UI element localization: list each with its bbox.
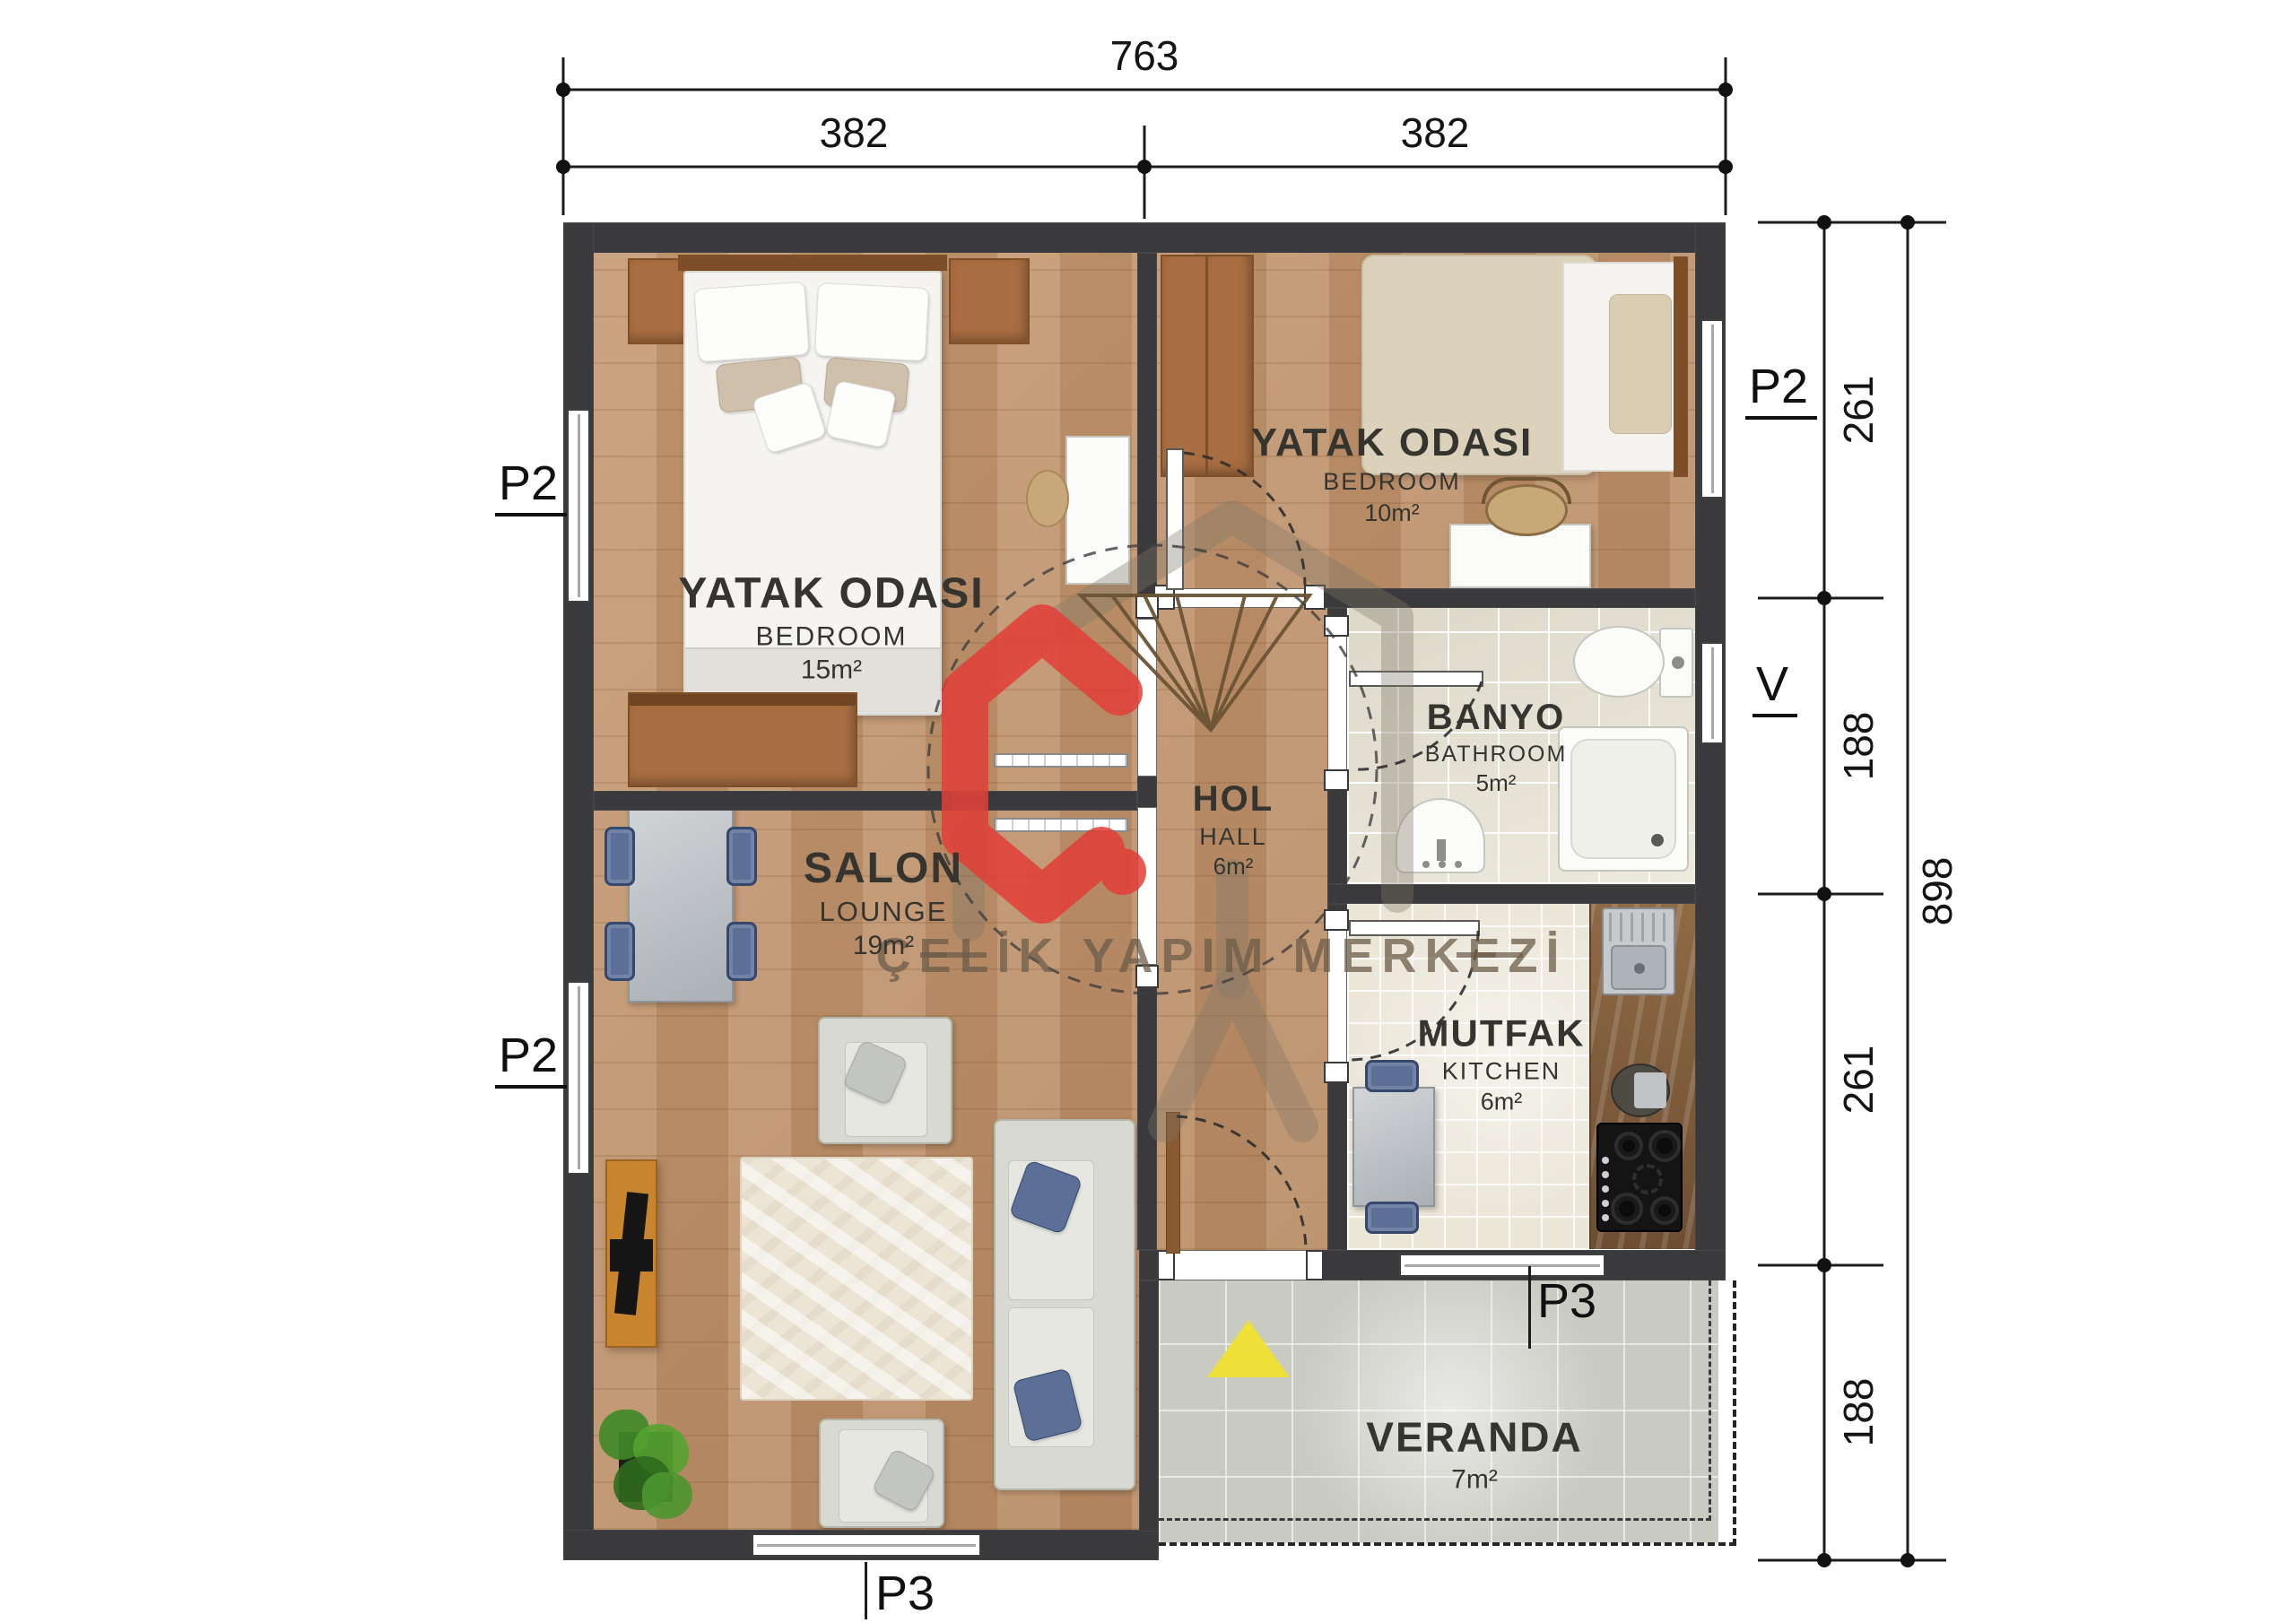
kitchen-area: 6m² [1418,1089,1586,1115]
burner [1650,1196,1679,1225]
burner [1611,1193,1643,1225]
toilet-bowl [1573,626,1665,698]
window-salon-left [567,981,590,1175]
hall-title: HOL [1193,779,1274,820]
shower-tray [1558,726,1689,872]
salon-label: SALON LOUNGE 19m² [804,845,963,961]
marker-v-right: V [1752,660,1797,717]
armchair [819,1419,944,1528]
bed-pillow [693,282,809,362]
door-jamb [1304,585,1326,610]
nightstand-right [949,258,1030,344]
sink-faucet-dot [1455,861,1462,868]
veranda-title: VERANDA [1366,1414,1582,1461]
stove [1596,1123,1683,1232]
door-jamb [1135,595,1159,619]
bathroom-area: 5m² [1425,770,1568,796]
vanity-table [1065,436,1130,585]
dining-table [628,796,734,1002]
bed-pillow [814,282,929,361]
kitchen-label: MUTFAK KITCHEN 6m² [1418,1011,1586,1115]
dim-top-right: 382 [1401,108,1470,157]
single-bed-headboard [1674,256,1688,477]
entrance-arrow-icon [1207,1320,1290,1377]
door-leaf-bathroom [1349,671,1483,687]
marker-tick [865,1562,867,1619]
burner [1648,1130,1681,1162]
stove-knob [1602,1185,1609,1193]
floor-plan-page: ÇELİK YAPIM MERKEZİ YATAK ODASI BEDROOM … [0,0,2296,1623]
bedroom1-area: 15m² [678,655,984,686]
wall-bedroom-salon [594,791,1137,811]
watermark-dash [1457,952,1523,958]
bedroom1-title: YATAK ODASI [678,570,984,619]
dining-chair [726,922,757,981]
salon-subtitle: LOUNGE [804,897,963,928]
marker-p2-right: P2 [1745,362,1817,420]
sink-faucet-dot [1439,861,1446,868]
kitchen-title: MUTFAK [1418,1011,1586,1054]
faucet-handle [1634,1072,1666,1108]
burner-spiral [1632,1164,1663,1194]
wall-salon-veranda [1139,1280,1159,1532]
dim-top-left: 382 [820,108,889,157]
doorway-bedroom1 [1137,619,1157,777]
window-bathroom-right [1700,642,1724,744]
door-jamb [1324,1062,1349,1083]
armchair [818,1017,952,1144]
bedroom1-subtitle: BEDROOM [678,621,984,652]
dining-chair [604,827,635,886]
bedroom2-area: 10m² [1251,499,1534,526]
radiator [994,818,1128,832]
door-jamb [1157,1250,1175,1280]
bedroom2-subtitle: BEDROOM [1251,468,1534,495]
door-leaf-bedroom2 [1166,448,1184,590]
bedroom2-title: YATAK ODASI [1251,421,1534,464]
marker-p3-bottom: P3 [875,1569,935,1618]
dim-right-4: 188 [1834,1378,1883,1447]
tv [610,1239,653,1271]
dining-chair [726,827,757,886]
toilet-flush-button [1672,656,1684,669]
doorway-entrance [1173,1250,1308,1280]
kitchen-faucet-unit [1611,1063,1670,1117]
marker-p2-left-top: P2 [495,459,567,516]
sofa [994,1119,1135,1490]
hall-subtitle: HALL [1193,823,1274,850]
burner [1614,1132,1643,1160]
wall-bathroom-kitchen [1327,884,1695,904]
marker-p3-veranda: P3 [1537,1277,1596,1325]
dim-right-3: 261 [1834,1046,1883,1115]
dim-right-1: 261 [1834,376,1883,445]
salon-area: 19m² [804,931,963,961]
radiator [994,753,1128,768]
hall-label: HOL HALL 6m² [1193,779,1274,880]
bedroom1-label: YATAK ODASI BEDROOM 15m² [678,570,984,686]
doorway-bathroom [1327,635,1347,771]
single-bed-pillow [1609,294,1672,434]
dresser-top-edge [630,694,856,706]
shower-drain [1651,834,1664,846]
stove-knob [1602,1157,1609,1164]
window-bedroom1-left [567,409,590,603]
window-salon-bottom [752,1533,981,1557]
kitchen-chair [1365,1202,1419,1234]
vanity-stool [1026,470,1069,527]
dining-chair [604,922,635,981]
kitchen-sink [1602,907,1675,995]
sink-faucet [1437,839,1446,861]
stove-knob [1602,1214,1609,1221]
wardrobe [1161,255,1254,477]
dim-top-total: 763 [1110,31,1179,80]
kitchen-subtitle: KITCHEN [1418,1057,1586,1084]
doorway-bedroom2 [1173,588,1306,608]
salon-title: SALON [804,845,963,893]
bathroom-title: BANYO [1425,698,1568,738]
hall-area: 6m² [1193,854,1274,880]
bedroom2-label: YATAK ODASI BEDROOM 10m² [1251,421,1534,526]
veranda-label: VERANDA 7m² [1366,1414,1582,1494]
veranda-area: 7m² [1366,1464,1582,1495]
wardrobe-divider-line [1205,256,1208,475]
double-bed-headboard [678,255,947,271]
dim-right-2: 188 [1834,712,1883,781]
exterior-wall-top [563,222,1726,253]
marker-tick [1528,1266,1531,1349]
sink-faucet-dot [1422,861,1430,868]
window-bedroom2-right [1700,319,1724,499]
stove-knob [1602,1171,1609,1178]
area-rug [740,1157,973,1401]
door-jamb [1324,769,1349,791]
door-jamb [1306,1250,1324,1280]
sink-drainboard [1609,913,1668,942]
bed-pillow [825,380,897,449]
sink-drain [1634,963,1645,974]
dim-right-total: 898 [1913,857,1961,926]
bathroom-subtitle: BATHROOM [1425,742,1568,767]
door-jamb [1324,615,1349,637]
dresser [628,692,857,787]
bathroom-label: BANYO BATHROOM 5m² [1425,698,1568,796]
marker-p2-left-bottom: P2 [495,1031,567,1089]
stove-knob [1602,1200,1609,1207]
kitchen-chair [1365,1060,1419,1092]
door-leaf-entrance [1166,1112,1180,1254]
